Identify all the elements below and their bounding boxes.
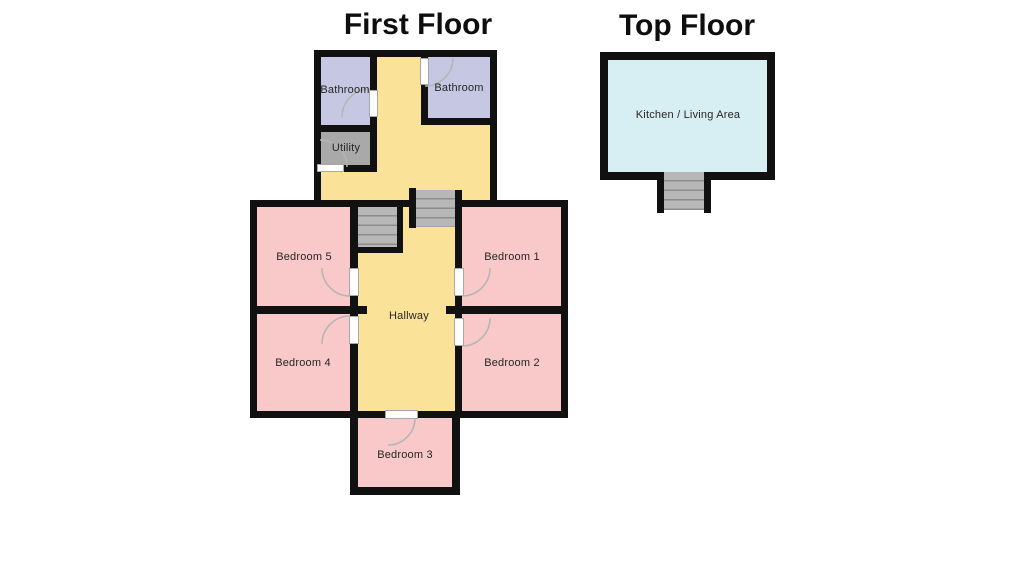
wall-divider-right (446, 306, 568, 314)
first-floor-title: First Floor (308, 8, 528, 42)
floor-plan-canvas: First Floor Top Floor (0, 0, 1024, 576)
door-leaf-bedroom-5 (349, 268, 359, 296)
stairs-top-floor (664, 172, 704, 210)
wall-segment (321, 125, 370, 132)
stairs-first-floor-left (358, 207, 397, 247)
top-floor-title: Top Floor (577, 9, 797, 43)
label-bathroom-left: Bathroom (320, 84, 369, 96)
door-leaf-bathroom-right (420, 58, 429, 85)
label-bedroom-5: Bedroom 5 (276, 251, 332, 263)
door-leaf-bedroom-1 (454, 268, 464, 296)
label-bathroom-right: Bathroom (434, 82, 483, 94)
label-kitchen-living: Kitchen / Living Area (636, 109, 740, 121)
label-utility: Utility (332, 142, 360, 154)
wall-segment (350, 247, 403, 253)
door-leaf-bedroom-2 (454, 318, 464, 346)
wall-segment (704, 172, 711, 213)
label-hallway: Hallway (389, 310, 429, 322)
label-bedroom-4: Bedroom 4 (275, 357, 331, 369)
door-leaf-utility (317, 164, 344, 172)
wall-hallway-right (455, 190, 462, 418)
label-bedroom-3: Bedroom 3 (377, 449, 433, 461)
stairs-first-floor-right (416, 190, 455, 227)
wall-segment (409, 188, 416, 228)
label-bedroom-2: Bedroom 2 (484, 357, 540, 369)
wall-divider-left (250, 306, 367, 314)
door-leaf-bedroom-3 (385, 410, 418, 419)
door-leaf-bathroom-left (369, 90, 378, 117)
door-leaf-bedroom-4 (349, 316, 359, 344)
wall-segment (657, 172, 664, 213)
label-bedroom-1: Bedroom 1 (484, 251, 540, 263)
wall-segment (421, 118, 490, 125)
